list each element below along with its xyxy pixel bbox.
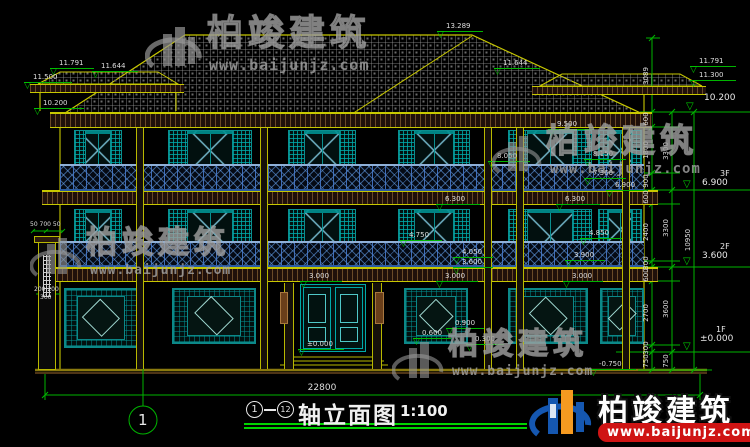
elevation-marker: ▽±0.000 — [298, 338, 344, 350]
dim-value: 50 700 50 — [30, 221, 61, 228]
elevation-marker: ▽0.900 — [446, 317, 484, 329]
elevation-value: 3.000 — [309, 272, 329, 280]
lattice-panel — [453, 131, 469, 167]
elevation-value: 3.000 — [445, 272, 465, 280]
level-triangle-icon: ▽ — [436, 281, 443, 289]
elevation-value: 11.300 — [699, 71, 724, 79]
brand-website: www.baijunjz.com — [598, 423, 750, 442]
dim-value: 600 — [642, 190, 650, 203]
window-pane — [86, 131, 110, 167]
window — [398, 130, 470, 168]
dim-value: 750 — [642, 354, 650, 367]
elevation-value: 6.300 — [445, 195, 465, 203]
wall-lamp — [375, 292, 384, 324]
elevation-value: 9.500 — [557, 120, 577, 128]
elevation-marker: ▽3.000 — [300, 270, 342, 282]
elevation-marker: ▽4.850 — [580, 227, 622, 239]
dim-value: 2400 — [642, 223, 650, 241]
title-axis-start-bubble: 1 — [246, 401, 263, 418]
axis-number: 1 — [251, 404, 257, 415]
cad-elevation-drawing: ▽13.289 ▽11.791 ▽11.644 ▽11.500 ▽10.200 … — [0, 0, 750, 447]
level-value: 10.200 — [704, 93, 736, 103]
lattice-panel — [232, 131, 251, 167]
diamond-pane — [522, 296, 574, 337]
elevation-value: -0.750 — [599, 360, 622, 368]
dim-value: 10950 — [684, 229, 692, 251]
floor-label: 1F — [716, 325, 726, 334]
level-triangle-icon: ▽ — [584, 159, 591, 167]
level-triangle-icon: ▽ — [34, 108, 41, 116]
elevation-value: 11.644 — [101, 62, 126, 70]
level-triangle-icon: ▽ — [683, 180, 691, 190]
elevation-marker: ▽11.644 — [494, 57, 540, 69]
elevation-marker: ▽8.150 — [584, 148, 626, 160]
elevation-marker: ▽6.300 — [436, 193, 480, 205]
window — [168, 130, 252, 168]
level-value: 6.900 — [702, 178, 728, 188]
dim-value: 750 — [662, 354, 670, 367]
elevation-value: 0.900 — [455, 319, 475, 327]
level-triangle-icon: ▽ — [437, 31, 444, 39]
elevation-marker: ▽10.200 — [34, 97, 84, 109]
elevation-value: 3.600 — [462, 258, 482, 266]
pilaster — [136, 128, 144, 369]
elevation-value: 11.791 — [699, 57, 724, 65]
elevation-value: 8.050 — [497, 152, 517, 160]
level-triangle-icon: ▽ — [563, 281, 570, 289]
level-triangle-icon: ▽ — [413, 338, 420, 346]
elevation-marker: ▽0.300 — [466, 333, 504, 345]
level-triangle-icon: ▽ — [606, 190, 613, 198]
window — [64, 288, 138, 348]
right-wing-roof — [540, 74, 702, 86]
elevation-value: 4.050 — [462, 248, 482, 256]
elevation-marker: ▽3.000 — [436, 270, 478, 282]
elevation-marker: ▽11.300 — [690, 69, 736, 81]
level-triangle-icon: ▽ — [466, 344, 473, 352]
level-triangle-icon: ▽ — [488, 161, 495, 169]
dim-value: 600 — [642, 112, 650, 125]
window — [172, 288, 256, 344]
level-triangle-icon: ▽ — [24, 82, 31, 90]
level-triangle-icon: ▽ — [683, 257, 691, 267]
elevation-value: 13.289 — [446, 22, 471, 30]
lattice-panel — [169, 131, 188, 167]
elevation-value: ±0.000 — [307, 340, 333, 348]
dim-value: 3300 — [662, 219, 670, 237]
level-triangle-icon: ▽ — [590, 369, 597, 377]
dim-value: 3600 — [662, 300, 670, 318]
level-triangle-icon: ▽ — [580, 238, 587, 246]
dim-value: 3300 — [662, 142, 670, 160]
elevation-value: 0.300 — [475, 335, 495, 343]
dim-value: 300 — [40, 294, 51, 301]
wall-lamp — [280, 292, 288, 324]
elevation-marker: ▽3.600 — [453, 256, 493, 268]
elevation-value: 6.900 — [615, 181, 635, 189]
window — [288, 130, 356, 168]
level-triangle-icon: ▽ — [686, 102, 694, 112]
lattice-panel — [110, 131, 121, 167]
elevation-marker: ▽0.600 — [413, 327, 451, 339]
lattice-panel — [289, 131, 305, 167]
elevation-marker: ▽3.900 — [565, 249, 605, 261]
elevation-marker: ▽9.500 — [548, 118, 594, 130]
level-triangle-icon: ▽ — [683, 342, 691, 352]
level-triangle-icon: ▽ — [300, 281, 307, 289]
elevation-value: 6.300 — [565, 195, 585, 203]
axis-bubble-number: 1 — [138, 411, 148, 429]
left-wing-eave-band — [30, 84, 184, 93]
floor-label: 2F — [720, 242, 730, 251]
level-triangle-icon: ▽ — [436, 204, 443, 212]
level-triangle-icon: ▽ — [92, 71, 99, 79]
window — [74, 130, 122, 168]
elevation-value: 11.500 — [33, 73, 58, 81]
axis-number: 12 — [280, 405, 290, 414]
balcony-railing-3f — [60, 164, 644, 191]
title-axis-end-bubble: 12 — [277, 401, 294, 418]
level-triangle-icon: ▽ — [690, 80, 697, 88]
dim-value: 300 — [642, 341, 650, 354]
elevation-value: 8.150 — [593, 150, 613, 158]
dim-value: 2700 — [642, 304, 650, 322]
dim-value: 3089 — [642, 67, 650, 85]
diamond-pane — [187, 296, 241, 337]
dim-value: 1800 — [642, 141, 650, 159]
elevation-marker: ▽8.050 — [488, 150, 530, 162]
elevation-marker: ▽4.750 — [400, 229, 442, 241]
right-wing-eave-band — [532, 86, 706, 95]
level-value: 3.600 — [702, 251, 728, 261]
elevation-marker: ▽-0.750 — [590, 358, 636, 370]
level-triangle-icon: ▽ — [584, 178, 591, 186]
brand-logo-icon — [528, 382, 596, 446]
level-value: ±0.000 — [700, 334, 733, 344]
level-triangle-icon: ▽ — [565, 260, 572, 268]
lattice-panel — [399, 131, 415, 167]
level-triangle-icon: ▽ — [400, 240, 407, 248]
elevation-value: 3.000 — [572, 272, 592, 280]
title-dash — [264, 409, 276, 411]
dim-value: 900 — [642, 174, 650, 187]
elevation-marker: ▽6.300 — [556, 193, 600, 205]
level-triangle-icon: ▽ — [298, 349, 305, 357]
elevation-value: 11.644 — [503, 59, 528, 67]
elevation-value: 10.200 — [43, 99, 68, 107]
elevation-marker: ▽11.791 — [50, 57, 94, 69]
overall-width-dimension: 22800 — [300, 383, 344, 393]
drawing-title: 轴立面图 — [298, 396, 398, 430]
elevation-value: 11.791 — [59, 59, 84, 67]
elevation-value: 0.600 — [422, 329, 442, 337]
level-triangle-icon: ▽ — [494, 68, 501, 76]
level-triangle-icon: ▽ — [548, 129, 555, 137]
elevation-value: 4.850 — [589, 229, 609, 237]
window-pane — [188, 131, 232, 167]
elevation-value: 3.900 — [574, 251, 594, 259]
level-triangle-icon: ▽ — [556, 204, 563, 212]
elevation-marker: ▽11.791 — [690, 55, 736, 67]
lattice-panel — [75, 131, 86, 167]
floor-label: 3F — [720, 169, 730, 178]
elevation-value: 7.360 — [593, 169, 613, 177]
elevation-marker: ▽11.500 — [24, 71, 72, 83]
pilaster — [622, 128, 630, 369]
diamond-pane — [77, 296, 125, 340]
balcony-railing-2f — [60, 241, 644, 267]
elevation-marker: ▽13.289 — [437, 20, 483, 32]
lattice-panel — [631, 131, 641, 167]
window-pane — [305, 131, 340, 167]
elevation-value: 4.750 — [409, 231, 429, 239]
lattice-panel — [339, 131, 355, 167]
drawing-scale: 1:100 — [400, 402, 448, 420]
dim-value: 600 — [642, 268, 650, 281]
decorative-column — [38, 242, 56, 370]
dim-value: 200 200 — [34, 286, 59, 293]
window-pane — [415, 131, 452, 167]
pilaster — [516, 128, 524, 369]
pilaster — [260, 128, 268, 369]
elevation-marker: ▽7.360 — [584, 167, 626, 179]
elevation-marker: ▽3.000 — [563, 270, 603, 282]
elevation-marker: ▽11.644 — [92, 60, 138, 72]
